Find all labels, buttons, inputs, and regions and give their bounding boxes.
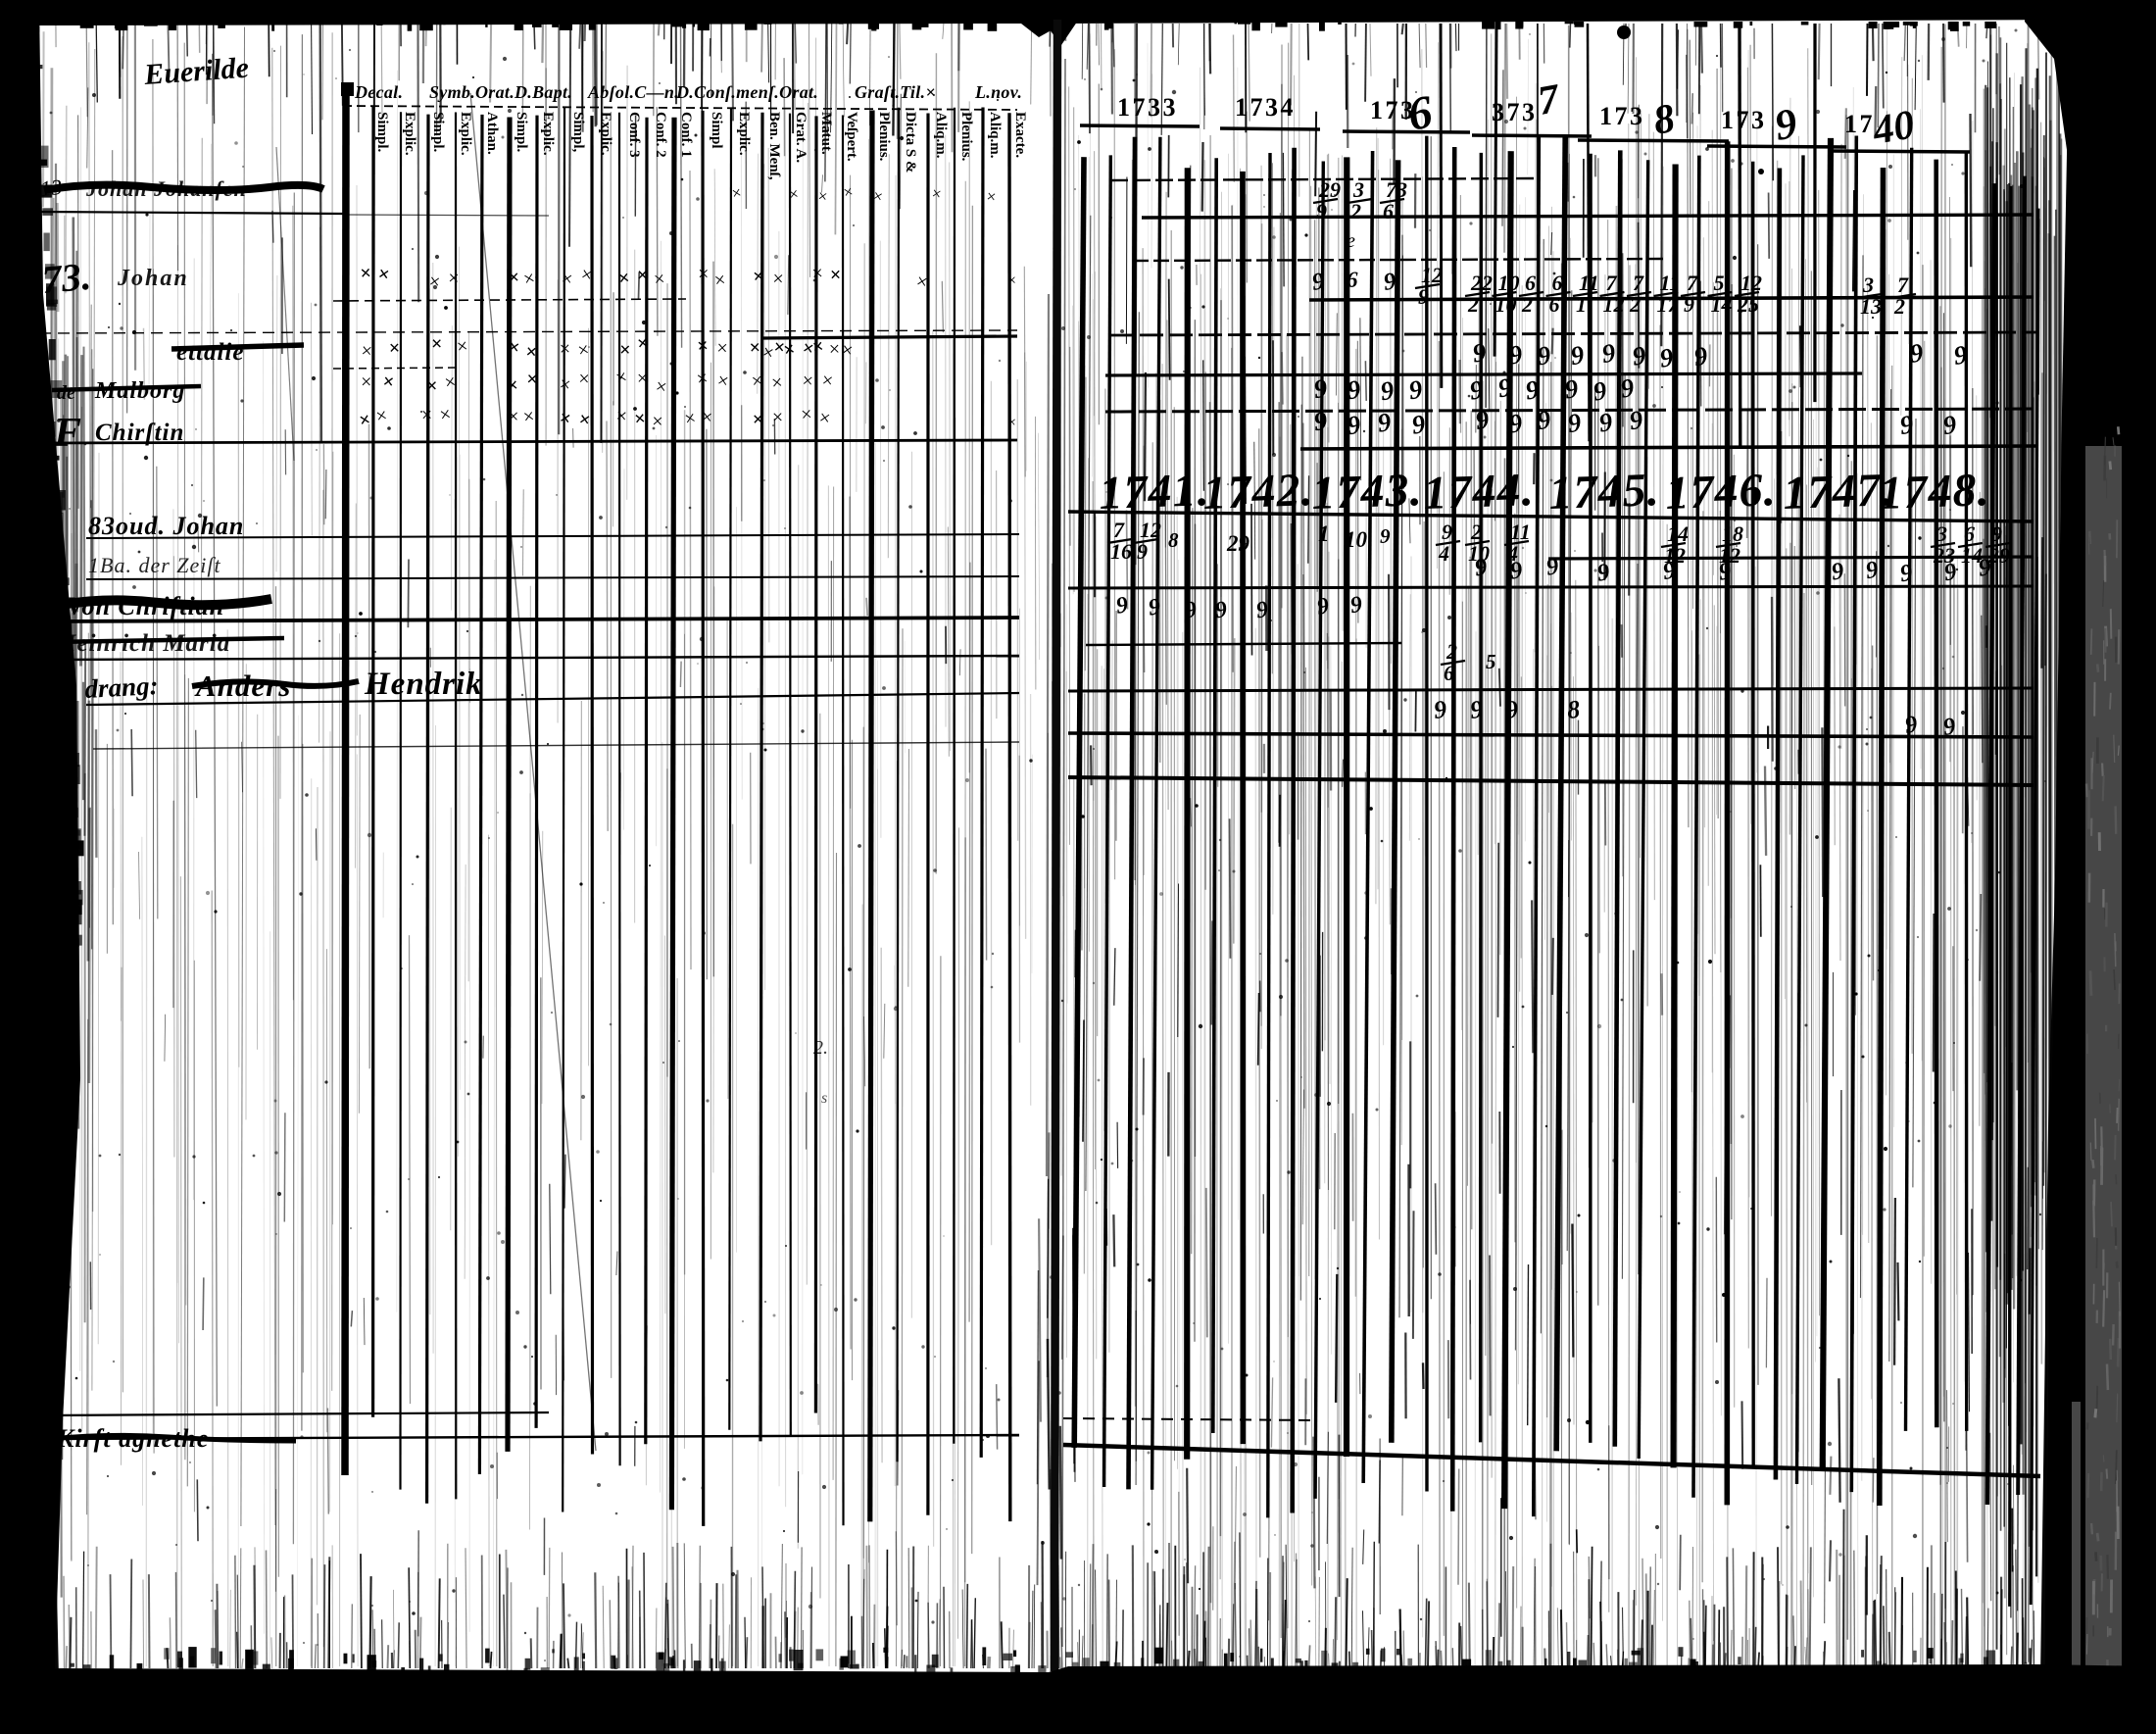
svg-text:1: 1: [1318, 521, 1330, 546]
svg-text:1745.: 1745.: [1548, 464, 1661, 520]
svg-text:1743.: 1743.: [1311, 464, 1424, 520]
svg-text:10: 10: [1495, 292, 1517, 317]
svg-text:Plenius.: Plenius.: [958, 112, 974, 162]
svg-text:×: ×: [508, 406, 519, 427]
svg-text:Grat. A.: Grat. A.: [793, 112, 808, 163]
svg-text:L.nov.: L.nov.: [974, 82, 1022, 102]
svg-text:Johan: Johan: [117, 266, 189, 291]
svg-text:25: 25: [1737, 292, 1759, 317]
svg-text:×: ×: [716, 337, 729, 360]
svg-text:8: 8: [1168, 528, 1179, 552]
svg-text:×: ×: [633, 408, 647, 430]
svg-text:9: 9: [1316, 199, 1327, 223]
svg-text:Veſpert.: Veſpert.: [844, 112, 859, 162]
svg-text:Simpl.: Simpl.: [374, 112, 390, 153]
svg-text:2: 2: [1893, 294, 1905, 319]
svg-text:2: 2: [1629, 292, 1641, 317]
svg-text:×: ×: [772, 407, 784, 428]
svg-text:×: ×: [615, 405, 628, 427]
svg-text:16: 16: [1110, 539, 1132, 564]
svg-text:Dicta S &: Dicta S &: [903, 112, 918, 173]
svg-text:drang:: drang:: [84, 670, 159, 704]
svg-text:D.Conſ.menſ.Orat.: D.Conſ.menſ.Orat.: [675, 82, 818, 102]
svg-text:Simpl: Simpl: [709, 112, 724, 149]
svg-text:Abſol.C—n.: Abſol.C—n.: [587, 82, 679, 102]
svg-text:1734: 1734: [1235, 93, 1296, 122]
svg-text:2: 2: [1467, 292, 1479, 317]
svg-text:40: 40: [1869, 102, 1918, 154]
svg-text:Conf. 3: Conf. 3: [626, 112, 642, 158]
svg-text:×: ×: [389, 337, 401, 359]
svg-text:9: 9: [1418, 284, 1429, 309]
svg-text:×: ×: [421, 405, 433, 426]
svg-text:×: ×: [698, 264, 710, 285]
svg-text:1746.: 1746.: [1665, 464, 1778, 520]
svg-text:Simpl.: Simpl.: [514, 112, 529, 153]
svg-text:373: 373: [1492, 98, 1538, 126]
svg-text:Malborg: Malborg: [94, 378, 185, 404]
svg-text:×: ×: [508, 267, 520, 289]
svg-text:Aliq.m.: Aliq.m.: [987, 112, 1003, 159]
svg-text:×: ×: [361, 372, 372, 393]
svg-text:×: ×: [696, 335, 710, 358]
svg-text:Symb.Orat.D.Bapt.: Symb.Orat.D.Bapt.: [429, 82, 572, 102]
svg-text:×: ×: [525, 341, 538, 364]
svg-text:Hendrik: Hendrik: [364, 667, 483, 702]
svg-text:13: 13: [1860, 294, 1882, 319]
svg-text:17: 17: [1657, 292, 1680, 317]
svg-text:×: ×: [802, 370, 814, 392]
svg-text:6: 6: [1549, 292, 1560, 317]
svg-text:83oud. Johan: 83oud. Johan: [88, 512, 244, 540]
svg-text:×: ×: [637, 368, 649, 389]
svg-text:Conf. 2: Conf. 2: [653, 112, 668, 158]
svg-text:Explic.: Explic.: [598, 112, 613, 156]
svg-text:×: ×: [752, 266, 765, 288]
svg-text:1733: 1733: [1117, 93, 1178, 122]
svg-text:s: s: [821, 1090, 827, 1107]
svg-text:×: ×: [361, 340, 373, 363]
svg-text:×: ×: [506, 374, 518, 397]
svg-text:1742.: 1742.: [1202, 464, 1315, 520]
svg-text:×: ×: [830, 265, 842, 286]
svg-text:173: 173: [1599, 102, 1645, 130]
svg-text:Matut.: Matut.: [818, 112, 834, 155]
svg-text:×: ×: [800, 404, 812, 426]
svg-text:12: 12: [1603, 292, 1625, 317]
svg-text:Explic.: Explic.: [402, 112, 417, 156]
svg-text:6: 6: [1444, 661, 1454, 685]
svg-text:2.: 2.: [813, 1037, 828, 1059]
svg-text:1748.: 1748.: [1879, 464, 1991, 520]
svg-text:Athan.: Athan.: [484, 112, 500, 155]
svg-text:Plenius.: Plenius.: [876, 112, 892, 162]
svg-text:6: 6: [1347, 268, 1358, 292]
svg-text:×: ×: [753, 409, 764, 430]
svg-text:×: ×: [1007, 415, 1017, 431]
svg-text:×: ×: [526, 369, 539, 391]
svg-text:×: ×: [559, 338, 570, 360]
svg-text:Decal.: Decal.: [354, 82, 403, 102]
svg-text:×: ×: [448, 268, 460, 290]
svg-text:e: e: [1347, 230, 1355, 252]
svg-text:2: 2: [1521, 292, 1533, 317]
svg-text:5: 5: [1486, 650, 1496, 673]
svg-text:Exacte.: Exacte.: [1012, 112, 1028, 158]
svg-text:Simpl,: Simpl,: [570, 112, 586, 153]
svg-text:Ben. Menſ,: Ben. Menſ,: [766, 112, 782, 180]
svg-text:Simpl.: Simpl.: [430, 112, 446, 153]
svg-text:×: ×: [360, 263, 372, 285]
svg-text:Explic.: Explic.: [540, 112, 556, 156]
svg-text:9: 9: [1380, 524, 1391, 548]
svg-text:1: 1: [1576, 292, 1587, 317]
svg-text:×: ×: [1007, 272, 1016, 289]
svg-text:9: 9: [1137, 539, 1148, 564]
svg-text:ettalie: ettalie: [176, 339, 244, 366]
svg-text:4: 4: [1438, 541, 1449, 566]
svg-text:Aliq.m.: Aliq.m.: [933, 112, 949, 159]
svg-text:×: ×: [749, 337, 761, 360]
svg-text:14: 14: [1711, 292, 1733, 317]
svg-text:29: 29: [1226, 531, 1250, 556]
svg-text:Graſt.Til.×: Graſt.Til.×: [855, 82, 936, 102]
svg-text:×: ×: [426, 375, 438, 397]
svg-text:F: F: [53, 411, 81, 456]
svg-text:2: 2: [1349, 199, 1361, 223]
svg-text:×: ×: [578, 368, 591, 390]
svg-text:Conf. 1: Conf. 1: [678, 112, 694, 158]
svg-text:Chirſtin: Chirſtin: [95, 420, 184, 446]
svg-text:1Ba. der Zeiſt: 1Ba. der Zeiſt: [88, 553, 221, 577]
svg-text:Explic.: Explic.: [458, 112, 473, 156]
svg-text:9: 9: [1684, 292, 1694, 317]
svg-text:×: ×: [431, 333, 442, 355]
svg-text:10: 10: [1345, 527, 1368, 552]
svg-text:×: ×: [772, 268, 785, 290]
svg-text:×: ×: [619, 339, 631, 361]
svg-text:×: ×: [829, 338, 841, 360]
svg-text:29: 29: [1987, 543, 2010, 568]
svg-text:6: 6: [1383, 199, 1394, 223]
svg-text:173: 173: [1721, 106, 1767, 134]
svg-text:×: ×: [652, 411, 663, 433]
svg-text:×: ×: [637, 265, 648, 286]
svg-text:1744.: 1744.: [1423, 464, 1536, 520]
svg-text:×: ×: [811, 263, 824, 285]
svg-text:Explic.: Explic.: [736, 112, 752, 156]
